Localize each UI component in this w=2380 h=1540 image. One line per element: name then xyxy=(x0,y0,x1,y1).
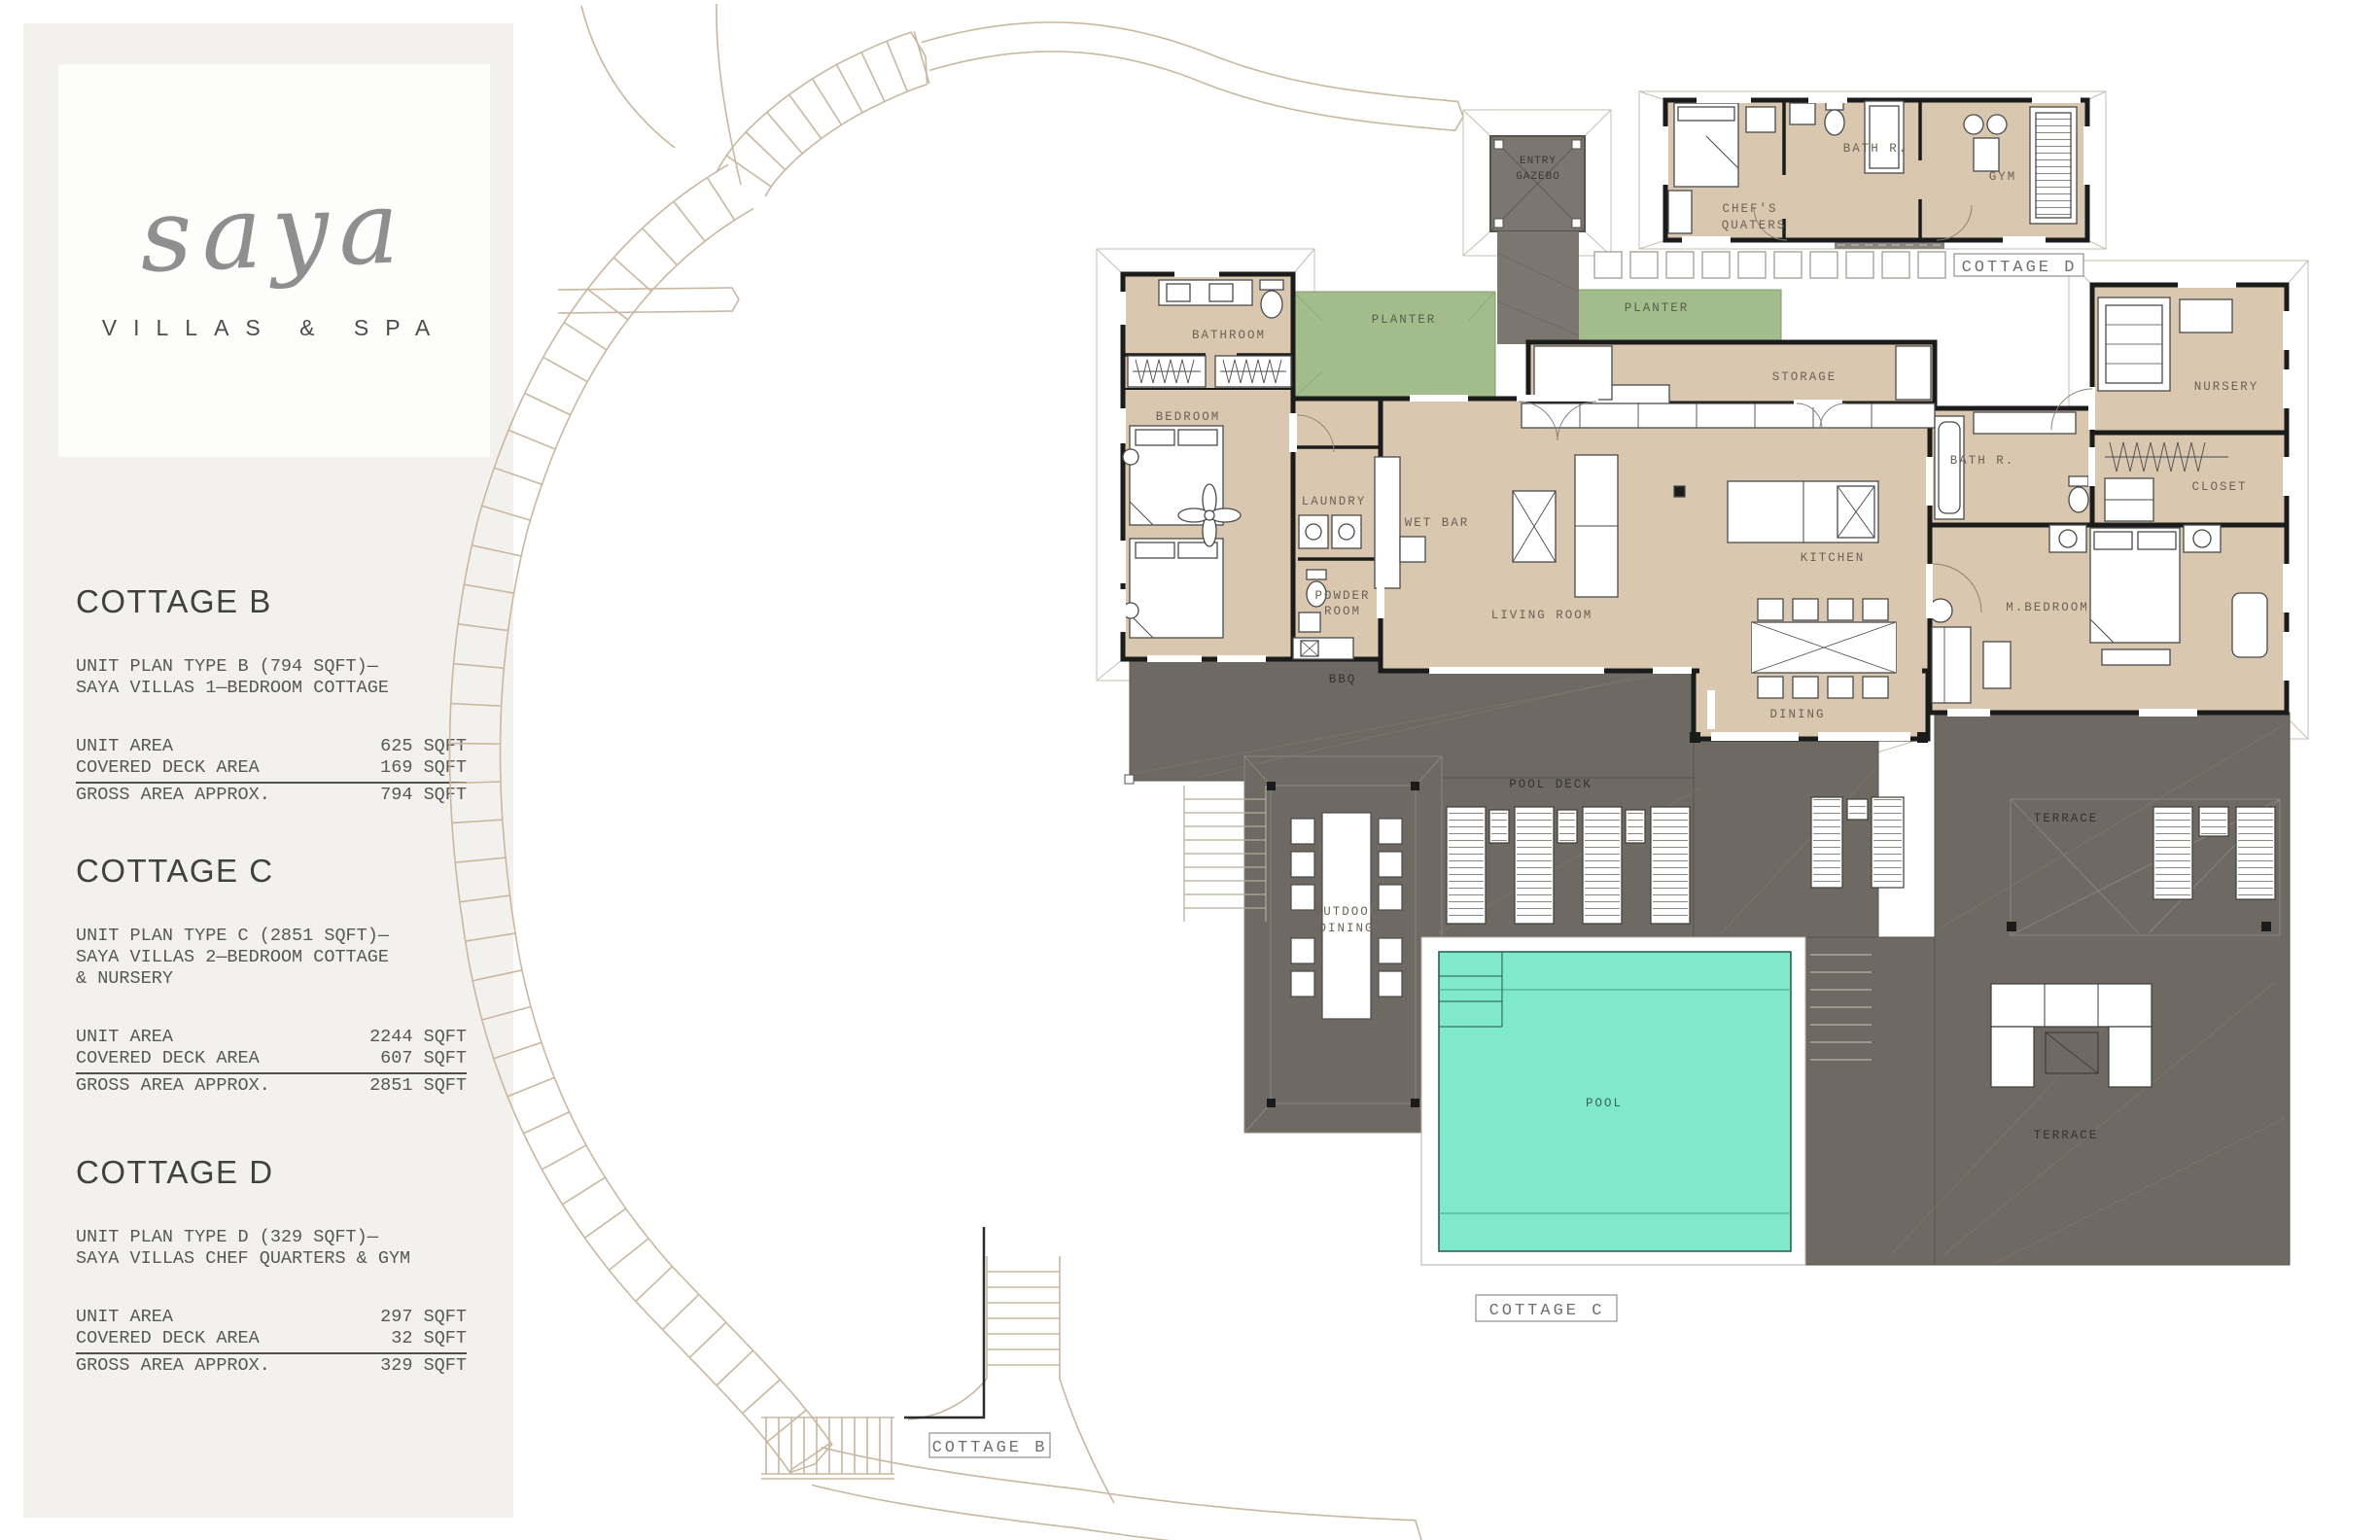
path-step xyxy=(587,289,627,319)
path-step xyxy=(455,857,506,862)
path-step xyxy=(726,156,771,187)
path-edge xyxy=(558,299,739,313)
label-bath-r-main: BATH R. xyxy=(1950,454,2015,468)
path-step xyxy=(914,31,929,84)
label-pool: POOL xyxy=(1586,1097,1623,1110)
path-edge xyxy=(450,165,816,1473)
path-step xyxy=(609,1239,648,1271)
path-step xyxy=(508,430,555,449)
label-chefs-quarters: CHEF'S xyxy=(1722,202,1777,216)
label-chefs-quarters: QUATERS xyxy=(1722,219,1787,232)
lamp-icon xyxy=(2059,530,2077,547)
label-outdoor-dining: DINING xyxy=(1318,922,1374,935)
retaining-wall-line xyxy=(904,1227,984,1417)
paver-path xyxy=(1594,252,1945,278)
path-step xyxy=(813,79,842,124)
path-step xyxy=(451,704,502,707)
label-gym: GYM xyxy=(1989,170,2017,184)
label-nursery: NURSERY xyxy=(2194,380,2259,394)
lamp-icon xyxy=(2193,530,2211,547)
page-background: saya VILLAS & SPA COTTAGE B UNIT PLAN TY… xyxy=(0,0,2380,1540)
path-step xyxy=(472,545,521,556)
path-step xyxy=(767,1410,806,1442)
path-step xyxy=(837,64,863,112)
entry-walkway xyxy=(1497,231,1579,344)
path-step xyxy=(542,1145,586,1170)
label-powder-room: POWDER xyxy=(1314,589,1370,603)
label-planter: PLANTER xyxy=(1625,301,1690,315)
label-closet: CLOSET xyxy=(2191,480,2247,494)
path-step xyxy=(707,178,734,221)
label-entry-gazebo: GAZEBO xyxy=(1516,171,1560,183)
path-edge xyxy=(765,56,927,196)
path-step xyxy=(887,41,907,91)
path-step xyxy=(743,1380,781,1414)
path-step xyxy=(861,52,885,102)
stairs-lower xyxy=(908,1256,1114,1503)
label-bath-r: BATH R. xyxy=(1843,142,1908,156)
path-step xyxy=(494,1042,542,1058)
path-step xyxy=(746,132,785,170)
path-step xyxy=(450,782,501,784)
path-step xyxy=(689,1322,725,1357)
path-step xyxy=(464,584,513,593)
path-step xyxy=(789,1443,831,1471)
path-step xyxy=(613,258,651,292)
label-powder-room: ROOM xyxy=(1324,605,1361,618)
path-step xyxy=(643,228,678,265)
path-step xyxy=(482,1006,531,1020)
path-step xyxy=(585,1208,626,1238)
label-living-room: LIVING ROOM xyxy=(1491,609,1593,622)
path-step xyxy=(636,1267,673,1302)
label-wet-bar: WET BAR xyxy=(1405,516,1470,530)
label-terrace: TERRACE xyxy=(2034,1129,2099,1142)
path-step xyxy=(466,933,515,941)
path-step xyxy=(525,393,571,414)
path-edge xyxy=(822,1448,1421,1540)
label-storage: STORAGE xyxy=(1772,370,1837,384)
label-entry-gazebo: ENTRY xyxy=(1520,156,1557,167)
tag-cottage-b: COTTAGE B xyxy=(932,1439,1048,1457)
path-step xyxy=(543,357,587,381)
path-step xyxy=(717,1350,753,1385)
path-step xyxy=(507,1077,554,1096)
path-edge xyxy=(922,22,1463,117)
path-step xyxy=(674,201,705,241)
path-step xyxy=(482,506,531,520)
sconce-icon xyxy=(1123,449,1138,465)
label-dining: DINING xyxy=(1769,708,1825,721)
path-edge xyxy=(929,52,1463,130)
path-step xyxy=(460,895,510,902)
path-step xyxy=(789,94,822,138)
label-terrace: TERRACE xyxy=(2034,812,2099,825)
terrace-sofa-set xyxy=(1991,984,2152,1087)
path-edge xyxy=(717,32,926,173)
label-pool-deck: POOL DECK xyxy=(1509,778,1592,791)
path-step xyxy=(458,624,508,631)
label-bbq: BBQ xyxy=(1329,673,1357,686)
label-kitchen: KITCHEN xyxy=(1801,551,1866,565)
path-step xyxy=(454,664,505,669)
path-step xyxy=(767,112,802,154)
path-step xyxy=(564,323,607,350)
path-step xyxy=(524,1112,570,1134)
path-step xyxy=(472,970,522,981)
entry-gazebo xyxy=(1490,136,1585,344)
path-step xyxy=(494,468,542,484)
path-step xyxy=(562,1177,605,1205)
label-laundry: LAUNDRY xyxy=(1302,495,1367,508)
label-bathroom: BATHROOM xyxy=(1192,329,1266,342)
tag-cottage-d: COTTAGE D xyxy=(1962,259,2078,277)
path-edge xyxy=(581,6,675,148)
path-edge xyxy=(812,1485,1421,1540)
tag-cottage-c: COTTAGE C xyxy=(1489,1302,1605,1320)
path-step xyxy=(452,820,503,822)
path-edge xyxy=(501,209,832,1465)
label-outdoor-dining: OUTDOOR xyxy=(1314,905,1380,919)
floor-plan: ENTRY GAZEBO CHEF'S QUATERS BATH R. GYM … xyxy=(0,0,2380,1540)
label-m-bedroom: M.BEDROOM xyxy=(2006,601,2089,614)
path-step xyxy=(663,1294,699,1329)
label-bedroom: BEDROOM xyxy=(1156,410,1221,424)
label-planter: PLANTER xyxy=(1372,313,1437,327)
